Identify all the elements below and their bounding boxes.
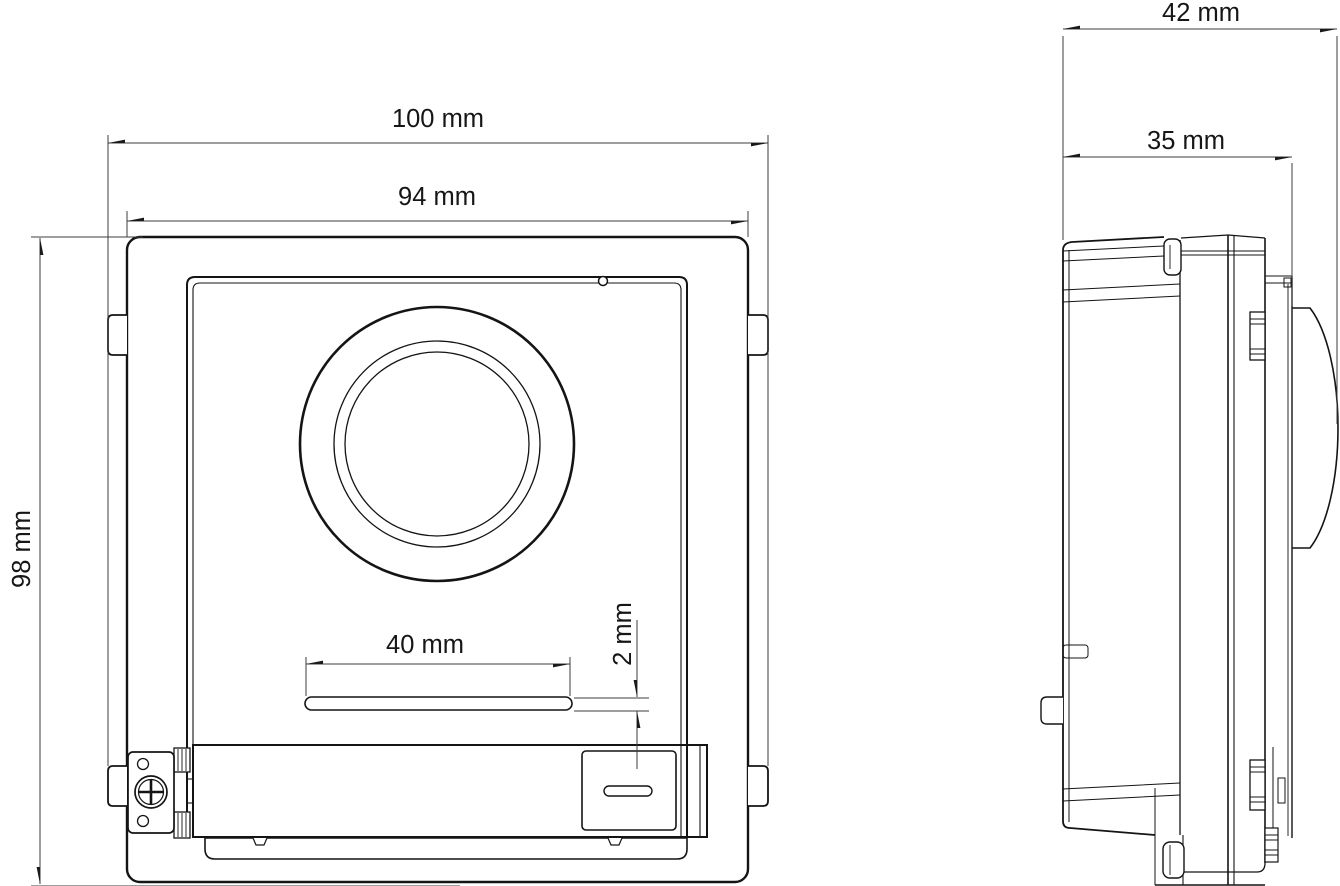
nameplate-bar (193, 745, 707, 837)
dim-label-front-panel-width: 94 mm (398, 183, 476, 211)
dim-slot-height: 2 mm (574, 602, 649, 769)
side-hinge-knuckle (1163, 842, 1184, 878)
camera-dome-profile (1292, 308, 1338, 548)
trim-notch-left (253, 838, 267, 845)
dimension-drawing-canvas: 100 mm 94 mm 98 mm 40 mm 2 mm (0, 0, 1340, 886)
side-spring-clip-bottom (1250, 760, 1265, 810)
side-top-step-lines (1181, 251, 1265, 255)
dim-label-side-body-depth: 35 mm (1147, 127, 1225, 155)
speaker-slot (305, 697, 572, 710)
dim-label-front-panel-height: 98 mm (8, 510, 36, 588)
front-panel-outline (127, 237, 748, 882)
screw-bracket (128, 752, 174, 833)
dim-label-slot-height: 2 mm (609, 602, 637, 666)
side-view (1041, 235, 1338, 885)
dim-side-body-depth: 35 mm (1063, 127, 1292, 306)
side-rail-clip (1063, 645, 1088, 658)
side-rear-tab (1041, 697, 1063, 724)
dim-label-slot-width: 40 mm (386, 631, 464, 659)
module-face-outer (187, 277, 687, 837)
call-button (582, 751, 676, 830)
module-face-inner (193, 283, 681, 837)
side-box-ribs (1063, 246, 1180, 801)
side-cover-latch (1278, 778, 1285, 803)
front-side-tabs (108, 315, 768, 806)
hinge-knuckles (174, 748, 193, 838)
dim-front-panel-width: 94 mm (127, 183, 748, 237)
dim-slot-width: 40 mm (306, 631, 570, 696)
side-top-edge (1181, 235, 1265, 238)
side-bottom-clip (1265, 828, 1278, 862)
side-top-bump (1164, 239, 1181, 275)
microphone-hole (599, 277, 608, 286)
side-cover-top-piece (1265, 276, 1292, 283)
front-view (108, 237, 768, 882)
camera-ring-outer (300, 307, 574, 581)
dim-label-side-overall-depth: 42 mm (1162, 0, 1240, 27)
call-button-slot (604, 786, 652, 796)
dim-side-overall-depth: 42 mm (1063, 0, 1337, 424)
trim-notch-right (608, 838, 622, 845)
dim-label-front-overall-width: 100 mm (392, 105, 484, 133)
technical-drawing: 100 mm 94 mm 98 mm 40 mm 2 mm (0, 0, 1340, 886)
side-module-bottom-step (1183, 863, 1265, 872)
camera-ring-middle (334, 341, 540, 547)
dimension-annotations: 100 mm 94 mm 98 mm 40 mm 2 mm (8, 0, 1337, 886)
side-box-outline (1063, 237, 1164, 835)
side-spring-clip-top (1250, 312, 1265, 360)
dim-front-panel-height: 98 mm (8, 237, 460, 886)
camera-lens (345, 352, 529, 536)
